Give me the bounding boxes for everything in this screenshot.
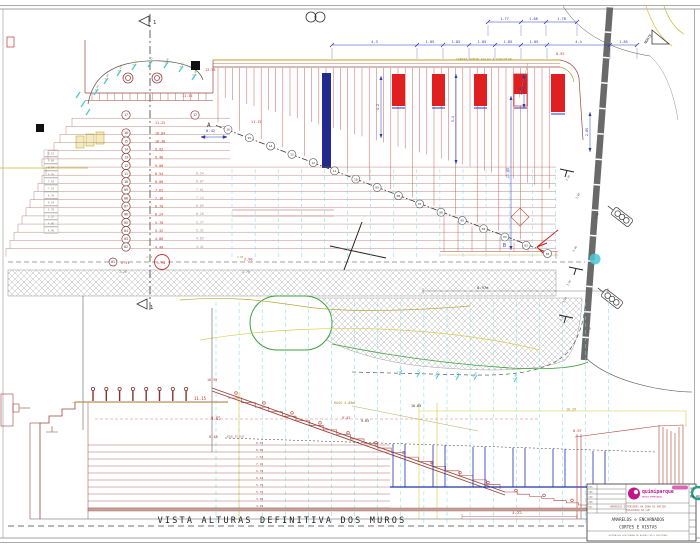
road-band	[584, 6, 610, 360]
ghost-elevation: 4.41	[196, 245, 204, 249]
course-elevation: 4.86	[256, 497, 263, 501]
label: 3.26	[119, 270, 127, 274]
step-elevation: 9.92	[155, 148, 163, 152]
step-elevation: 7.62	[155, 188, 163, 192]
column-square	[36, 124, 44, 132]
ghost-elevation: 7.14	[196, 196, 204, 200]
course-elevation: 7.62	[48, 180, 55, 184]
spot-elevation: 3.42	[433, 370, 440, 378]
elevation-label: 9.65	[361, 419, 369, 423]
view-title: VISTA ALTURAS DEFINITIVA DOS MUROS	[158, 516, 407, 526]
dimension-label: 4.2	[376, 104, 380, 110]
course-elevation: 7.62	[256, 455, 263, 459]
cyan-marker-dot	[590, 254, 601, 265]
step-elevation: 10.38	[155, 139, 165, 143]
step-number: 09	[375, 186, 379, 190]
step-number: 08	[124, 196, 128, 200]
label: 8.97m	[477, 285, 489, 290]
step-number: 03	[124, 237, 128, 241]
note-contraforte: CONTRA FORTE FALSO A EXECUTAR	[456, 58, 512, 62]
step-elevation: 7.16	[155, 196, 163, 200]
step-number: 08	[397, 194, 401, 198]
elevation-label: 9.65	[211, 416, 221, 421]
course-elevation: 6.24	[48, 201, 55, 205]
label: 4.05	[237, 255, 244, 259]
step-number: 11	[124, 172, 128, 176]
step-number: 07	[124, 204, 128, 208]
elevation-label: 10.65	[411, 404, 421, 408]
course-elevation: 4.86	[48, 222, 55, 226]
ghost-elevation: 8.54	[196, 172, 204, 176]
course-elevation: 4.40	[256, 504, 263, 508]
wall-buttress-lines	[218, 68, 556, 259]
course-elevation: 8.54	[48, 166, 55, 170]
step-number: 01	[546, 252, 550, 256]
ghost-elevation: 6.26	[196, 212, 204, 216]
step-number: 02	[124, 245, 128, 249]
titleblock-row-label: ESC.	[589, 506, 594, 509]
plan-view: NORTE	[0, 6, 692, 392]
contour-tr-y2	[664, 6, 684, 34]
titleblock-row-label: VER.	[589, 491, 594, 494]
contour-tr-2	[650, 56, 678, 120]
ghost-elevation: 4.85	[196, 237, 204, 241]
dimension-label: 1.85	[426, 40, 435, 44]
step-elevation: 5.78	[155, 221, 163, 225]
drawing-sheet: NORTE	[0, 0, 700, 550]
ghost-elevation: 5.77	[196, 220, 204, 224]
label: 2.91	[121, 261, 129, 265]
step-elevation: 8.54	[155, 172, 163, 176]
course-elevation: 5.32	[48, 215, 55, 219]
label: 4.05	[146, 255, 153, 259]
course-elevation: 8.08	[48, 173, 55, 177]
step-elevation: 6.70	[155, 205, 163, 209]
tb-project1: ARRANJOS EXTERIORES NA ZONA DO ANTIGO	[610, 505, 666, 509]
course-elevation: 8.54	[256, 441, 263, 445]
step-number: 10	[124, 180, 128, 184]
dimension-label: 1.77	[500, 17, 509, 21]
label: 12.55	[205, 68, 216, 72]
dimension-label: 2.48	[519, 87, 523, 95]
quay-hatch-band	[8, 270, 556, 296]
step-number: 14	[124, 147, 128, 151]
title-block: DES.VER.COP.APR.ESC. quimiparque PARQUE …	[587, 484, 700, 541]
step-number: 12	[311, 161, 315, 165]
course-elevation: 4.40	[48, 229, 55, 233]
step-number: 11	[333, 169, 337, 173]
spot-elevation: 3.43	[414, 368, 421, 376]
dimension-label: 1.85	[504, 40, 513, 44]
step-diagonal-line	[216, 126, 549, 254]
traffic-light-icon	[605, 202, 633, 227]
ghost-elevation: 5.31	[196, 229, 204, 233]
step-elevation: 9.46	[155, 156, 163, 160]
spot-elevation: 3.44	[396, 366, 403, 374]
step-elevation: 5.32	[155, 229, 163, 233]
step-number: 17	[124, 113, 128, 117]
step-number: 15	[124, 139, 128, 143]
step-number: 06	[124, 213, 128, 217]
course-elevation: 9.00	[48, 159, 55, 163]
double-circle-icon	[315, 12, 325, 22]
rasg-leader	[352, 406, 478, 431]
ghost-elevation: 7.61	[196, 188, 204, 192]
tb-number-label: Nº	[691, 487, 695, 491]
section-marker-icon	[139, 16, 149, 26]
label: 1	[153, 20, 156, 26]
step-number: 15	[247, 136, 251, 140]
course-elevation: 6.70	[256, 469, 263, 473]
course-elevation: 7.16	[48, 187, 55, 191]
dimension-label: 1.85	[619, 40, 628, 44]
elevation-label: RASG 4.08m	[334, 401, 354, 405]
spot-elevation: 3.36	[571, 245, 578, 253]
wall-profile	[40, 402, 228, 519]
step-elevation: 8.08	[155, 180, 163, 184]
tree-circles	[123, 73, 162, 83]
spot-elevation: 3.39	[511, 373, 518, 381]
shore-curve	[585, 357, 692, 392]
label: 1	[150, 305, 153, 311]
course-elevation: 5.78	[256, 483, 263, 487]
dimension-label: 1.68	[529, 17, 538, 21]
step-number: 17	[193, 113, 197, 117]
dimension-label: 2.89	[585, 128, 589, 136]
section-marker-icon	[137, 299, 147, 309]
step-number: 04	[482, 227, 486, 231]
step-number: 12	[124, 164, 128, 168]
label: 2.90	[244, 258, 252, 262]
titleblock-row-label: DES.	[589, 486, 594, 489]
spot-elevation: 3.40	[471, 371, 478, 379]
step-number: 02	[524, 243, 528, 247]
elevation-label: 10.59	[207, 378, 217, 382]
navy-bar	[322, 73, 331, 168]
label: 11.15	[251, 120, 262, 124]
ghost-elevation: 8.07	[196, 180, 204, 184]
course-elevation: 5.78	[48, 208, 55, 212]
course-elevation: 7.16	[256, 462, 263, 466]
tb-note: ALTERACOES EFECTUADAS DE ACORDO COM O EX…	[609, 534, 669, 537]
label: 11.15	[182, 94, 193, 98]
label: B	[503, 243, 506, 249]
step-number: 13	[124, 156, 128, 160]
hatch-area	[300, 298, 582, 370]
step-number: 09	[124, 188, 128, 192]
dimension-label: 4.3	[371, 40, 378, 44]
course-elevation: 6.70	[48, 194, 55, 198]
course-elevation: 6.24	[256, 476, 263, 480]
dimension-label: 1.85	[452, 40, 461, 44]
elevation-label: 9.43	[342, 416, 350, 420]
step-number: 13	[290, 153, 294, 157]
elevation-label: 8.97	[573, 429, 582, 433]
tb-number: 0q-AE0	[690, 495, 700, 499]
step-number: 14	[269, 144, 273, 148]
x-cross-mark	[330, 222, 386, 270]
step-number: 03	[503, 235, 507, 239]
step-number: 04	[124, 229, 128, 233]
north-arrow-icon	[652, 30, 669, 44]
label: 8.92	[556, 52, 564, 56]
svg-text:quimiparque: quimiparque	[642, 489, 674, 495]
course-elevation: 5.32	[256, 490, 263, 494]
step-number: 07	[418, 202, 422, 206]
label: 3.79	[242, 270, 250, 274]
dimension-label: 1.85	[530, 40, 539, 44]
elevation-label: 10.29	[566, 408, 576, 412]
step-number: 05	[124, 221, 128, 225]
spot-elevation: 3.45	[565, 279, 572, 287]
dimension-label: 1.78	[557, 17, 566, 21]
step-number: 16	[124, 131, 128, 135]
tb-project2: ESTALEIRO DA CUF	[626, 508, 651, 512]
step-number: 16	[226, 128, 230, 132]
double-circle-icon	[306, 12, 316, 22]
course-elevation: 8.08	[256, 448, 263, 452]
label: 3.94	[157, 261, 166, 265]
ghost-elevation: 6.69	[196, 204, 204, 208]
elevation-label: 9.48	[209, 435, 218, 439]
dimension-label: 5.4	[451, 116, 455, 122]
spot-elevation: 3.49	[574, 192, 581, 200]
legend-mini-box	[7, 37, 14, 47]
dimension-label: 4.4	[575, 40, 582, 44]
step-elevation: 11.25	[155, 121, 165, 125]
buttresses	[322, 73, 565, 168]
dimension-label: 1.85	[478, 40, 487, 44]
step-elevation: 4.86	[155, 237, 163, 241]
column-square	[191, 61, 200, 70]
step-elevation: 6.24	[155, 213, 163, 217]
tb-subject2: CORTES E VISTAS	[619, 525, 657, 530]
step-elevation: 10.84	[155, 131, 165, 135]
label: A	[207, 122, 211, 129]
step-elevation: 4.40	[155, 245, 163, 249]
titleblock-row-label: COP.	[589, 496, 594, 499]
left-edge-detail	[1, 394, 58, 432]
elevation-label: 11.15	[194, 396, 207, 401]
svg-text:PARQUE EMPRESARIAL: PARQUE EMPRESARIAL	[642, 496, 663, 499]
step-elevation: 9.00	[155, 164, 163, 168]
titleblock-row-label: APR.	[589, 501, 594, 504]
tb-subject1: AMARELOS e ENCARNADOS	[612, 517, 665, 522]
course-elevation: 9.23	[48, 152, 55, 156]
traffic-light-icon	[595, 284, 623, 309]
step-number: 01	[111, 260, 115, 264]
step-number: 10	[354, 177, 358, 181]
step-number: 05	[460, 219, 464, 223]
